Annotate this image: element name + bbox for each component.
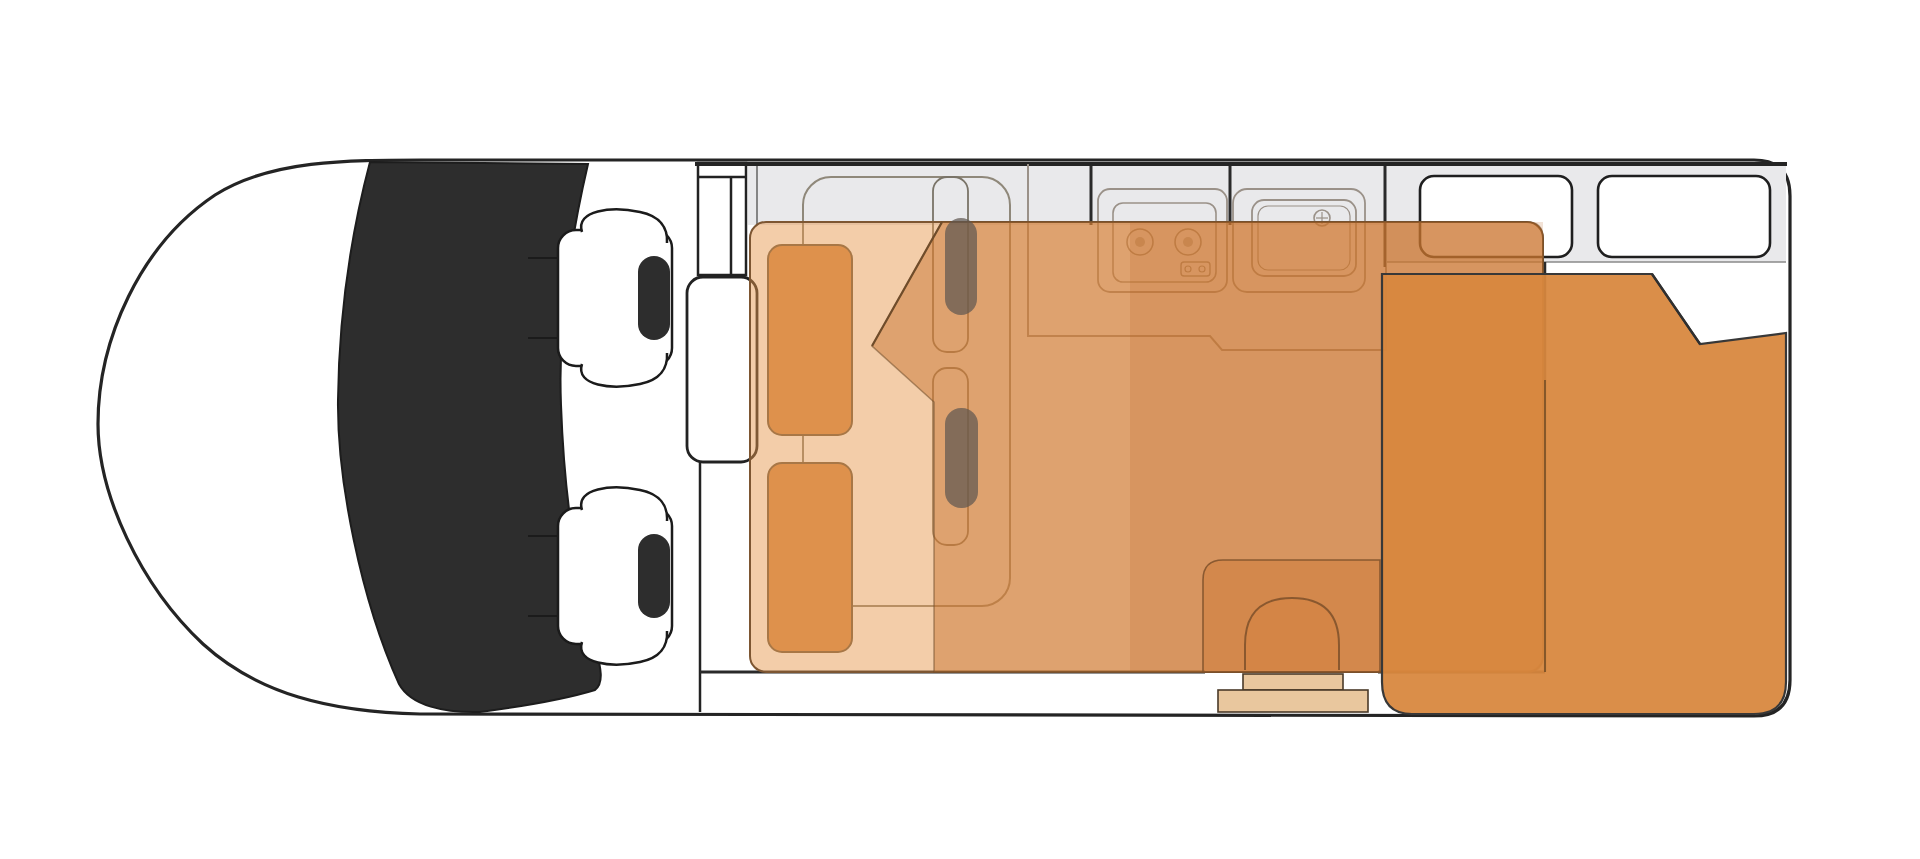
rear-bed-overlay [1382, 274, 1786, 714]
entry-door-arch [1245, 598, 1339, 670]
travel-seat-upper-headrest [945, 218, 977, 315]
driver-headrest [638, 256, 670, 340]
campervan-floorplan [0, 0, 1920, 859]
partition-wall-top [698, 163, 746, 275]
floorplan-canvas [0, 0, 1920, 859]
entry-step-lower [1218, 690, 1368, 712]
top-band-kitchen-side [748, 163, 1387, 225]
passenger-headrest [638, 534, 670, 618]
rear-window-right [1598, 176, 1770, 257]
entry-step-upper [1243, 674, 1343, 690]
travel-seat-lower-headrest [945, 408, 978, 508]
wardrobe-cabinet [687, 277, 757, 462]
